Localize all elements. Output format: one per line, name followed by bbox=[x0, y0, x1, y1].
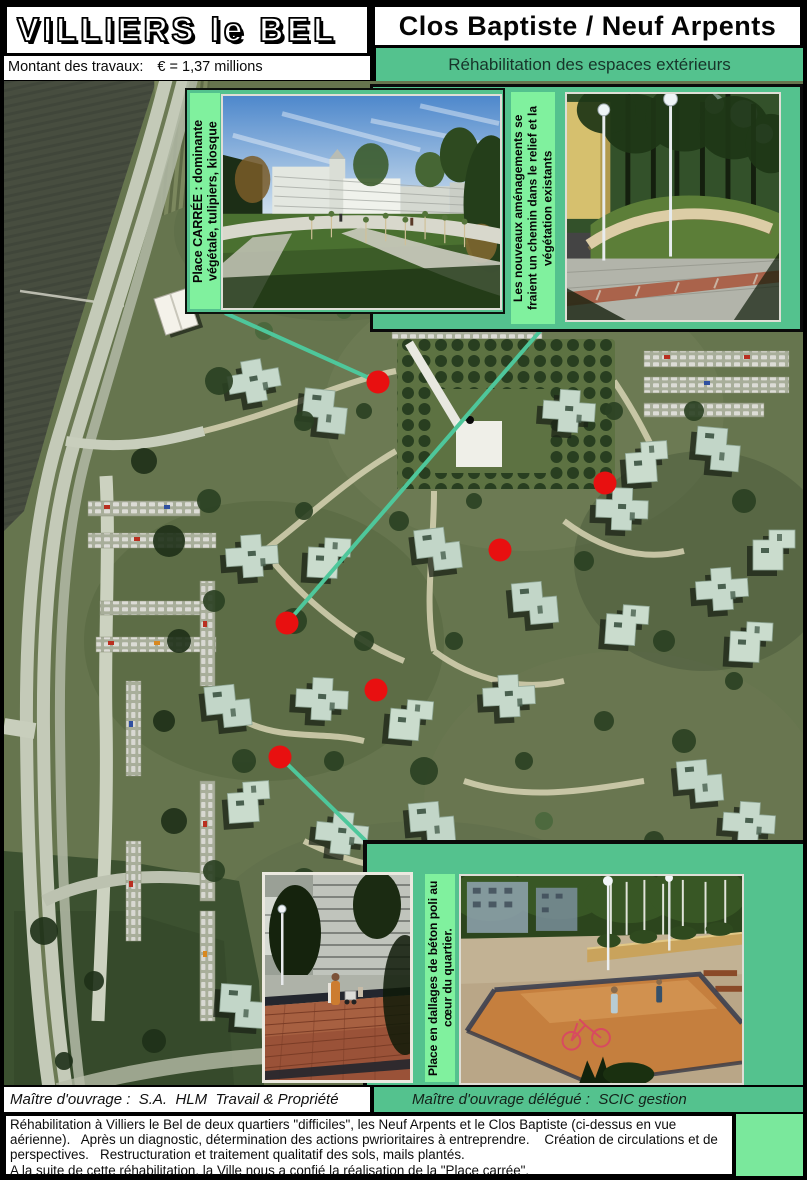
photo-place-carree bbox=[221, 94, 502, 310]
description-paragraph: Réhabilitation à Villiers le Bel de deux… bbox=[10, 1117, 728, 1163]
caption-chemin: Les nouveaux aménagements se fraient un … bbox=[511, 92, 555, 324]
works-amount-row: Montant des travaux: € = 1,37 millions bbox=[8, 59, 368, 79]
project-title-box: Clos Baptiste / Neuf Arpents bbox=[372, 4, 803, 48]
description-closing: A la suite de cette réhabilitation, la V… bbox=[10, 1163, 728, 1178]
subtitle-text: Réhabilitation des espaces extérieurs bbox=[448, 55, 731, 75]
inset-dallages: Place en dallages de béton poli au cœur … bbox=[363, 840, 803, 1085]
caption-bar-dallages: Place en dallages de béton poli au cœur … bbox=[425, 874, 455, 1082]
maitre-ouvrage-text: Maître d'ouvrage : S.A. HLM Travail & Pr… bbox=[10, 1091, 339, 1108]
works-amount-value: € = 1,37 millions bbox=[157, 59, 262, 79]
footer-maitre-ouvrage: Maître d'ouvrage : S.A. HLM Travail & Pr… bbox=[4, 1087, 370, 1112]
description-box: Réhabilitation à Villiers le Bel de deux… bbox=[4, 1114, 734, 1176]
inset-place-carree: Place CARRÉE : dominante végétale, tulip… bbox=[185, 88, 505, 314]
caption-bar-chemin: Les nouveaux aménagements se fraient un … bbox=[511, 92, 555, 324]
city-title: VILLIERS le BEL bbox=[17, 11, 337, 49]
photo-plaza-stroller bbox=[262, 872, 413, 1083]
photo-chemin bbox=[565, 92, 781, 322]
caption-place-carree: Place CARRÉE : dominante végétale, tulip… bbox=[191, 93, 220, 309]
caption-dallages: Place en dallages de béton poli au cœur … bbox=[426, 874, 455, 1082]
footer-maitre-ouvrage-delegue: Maître d'ouvrage délégué : SCIC gestion bbox=[374, 1087, 803, 1112]
presentation-board: VILLIERS le BEL Montant des travaux: € =… bbox=[0, 0, 807, 1180]
caption-bar-place-carree: Place CARRÉE : dominante végétale, tulip… bbox=[190, 93, 220, 309]
footer-green-block bbox=[736, 1114, 803, 1176]
maitre-ouvrage-delegue-text: Maître d'ouvrage délégué : SCIC gestion bbox=[412, 1091, 687, 1108]
photo-dallages bbox=[459, 874, 744, 1085]
subtitle-banner: Réhabilitation des espaces extérieurs bbox=[372, 48, 803, 81]
project-title: Clos Baptiste / Neuf Arpents bbox=[399, 11, 777, 42]
works-amount-label: Montant des travaux: bbox=[8, 59, 143, 79]
city-title-box: VILLIERS le BEL bbox=[4, 4, 370, 56]
